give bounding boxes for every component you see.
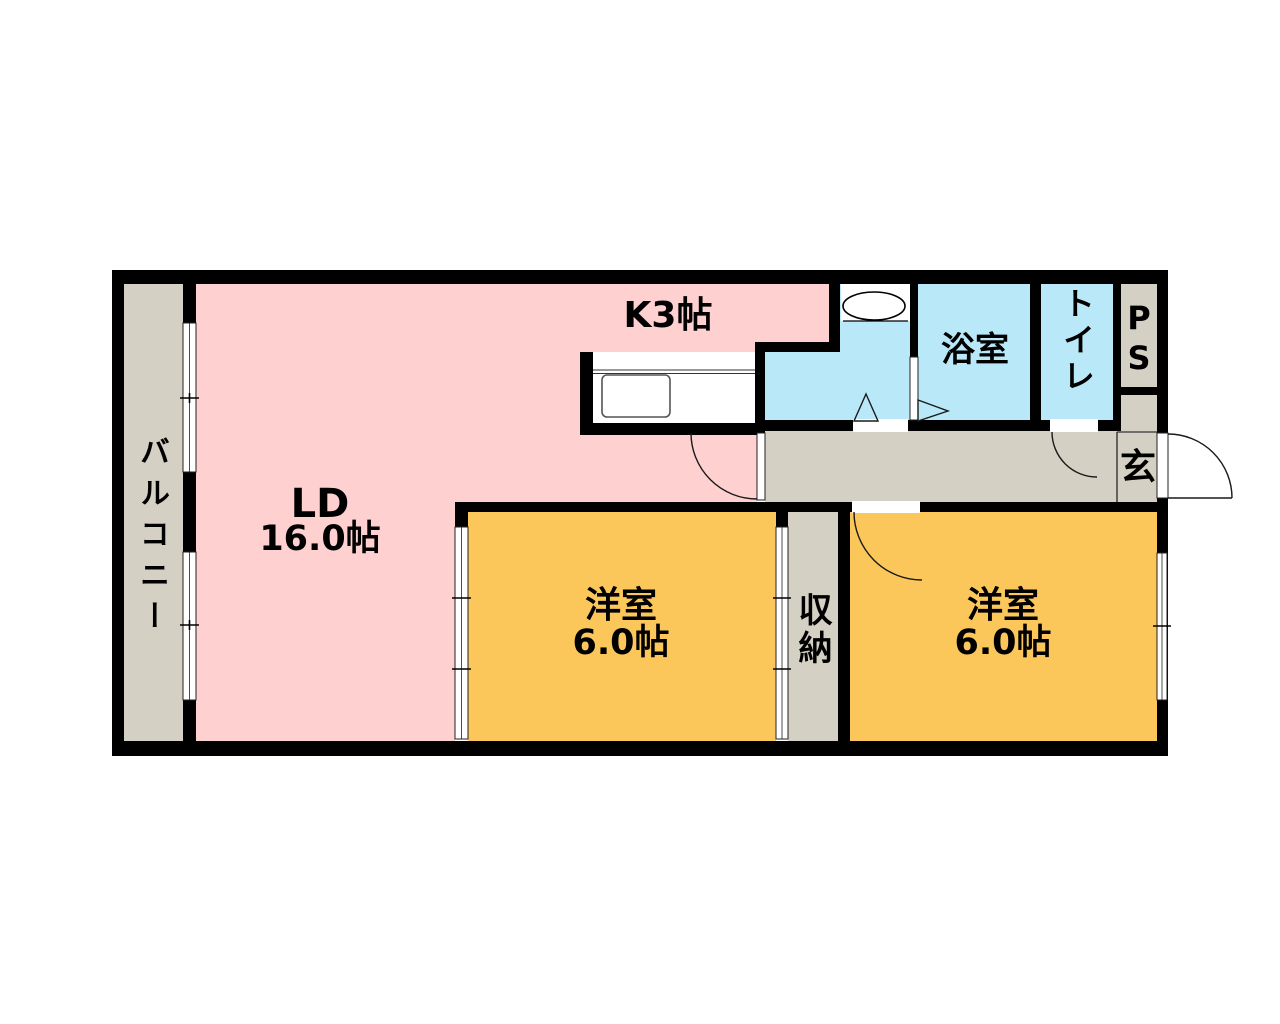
wall-hallway-top-seg1 xyxy=(765,420,853,431)
wall-toilet-ps xyxy=(1113,284,1121,431)
wall-hallway-top-seg3 xyxy=(1098,420,1121,431)
wall-bedrooms-top-seg1 xyxy=(455,502,852,512)
room-pipe-space-floor xyxy=(1121,284,1157,387)
kitchen-sink xyxy=(602,375,670,417)
room-toilet-floor xyxy=(1041,284,1113,420)
wall-post-ld-door xyxy=(455,502,468,527)
wall-balcony-mid-seg xyxy=(183,472,196,552)
washroom-basin xyxy=(843,292,905,320)
door-bathroom xyxy=(910,357,918,420)
room-closet-floor xyxy=(788,512,838,741)
room-western-right-floor xyxy=(850,512,1157,741)
room-bathroom-floor xyxy=(918,284,1030,420)
wall-ps-bottom xyxy=(1118,387,1157,395)
wall-hallway-top-seg2 xyxy=(908,420,1050,431)
room-balcony-floor xyxy=(124,284,183,741)
door-arc-entrance xyxy=(1168,434,1232,498)
door-entrance-leaf xyxy=(1157,433,1168,498)
wall-balcony-top-seg xyxy=(183,284,196,323)
wall-washroom-bathroom xyxy=(910,284,918,357)
wall-counter-right xyxy=(755,352,765,433)
wall-outer-top xyxy=(112,270,1168,284)
wall-kitchen-step xyxy=(755,342,840,352)
wall-outer-bottom xyxy=(112,741,1168,756)
floorplan-drawing xyxy=(0,0,1280,1024)
wall-balcony-bottom-seg xyxy=(183,700,196,741)
wall-bathroom-toilet xyxy=(1030,284,1041,431)
wall-counter-left xyxy=(580,352,593,435)
floorplan-page: バルコニー LD 16.0帖 K3帖 浴室 トイレ PS 玄 収納 洋室 6.0… xyxy=(0,0,1280,1024)
door-ld-hallway xyxy=(757,433,765,500)
wall-outer-left xyxy=(112,270,124,756)
wall-kitchen-washroom xyxy=(829,284,840,352)
wall-post-closet-door xyxy=(776,510,788,527)
room-western-left-floor xyxy=(468,512,776,741)
doorway-western-right xyxy=(852,501,920,513)
wall-counter-bottom xyxy=(580,423,765,435)
doorway-toilet xyxy=(1050,419,1098,432)
wall-bedrooms-top-seg2 xyxy=(920,502,1157,512)
wall-closet-right xyxy=(838,512,850,741)
